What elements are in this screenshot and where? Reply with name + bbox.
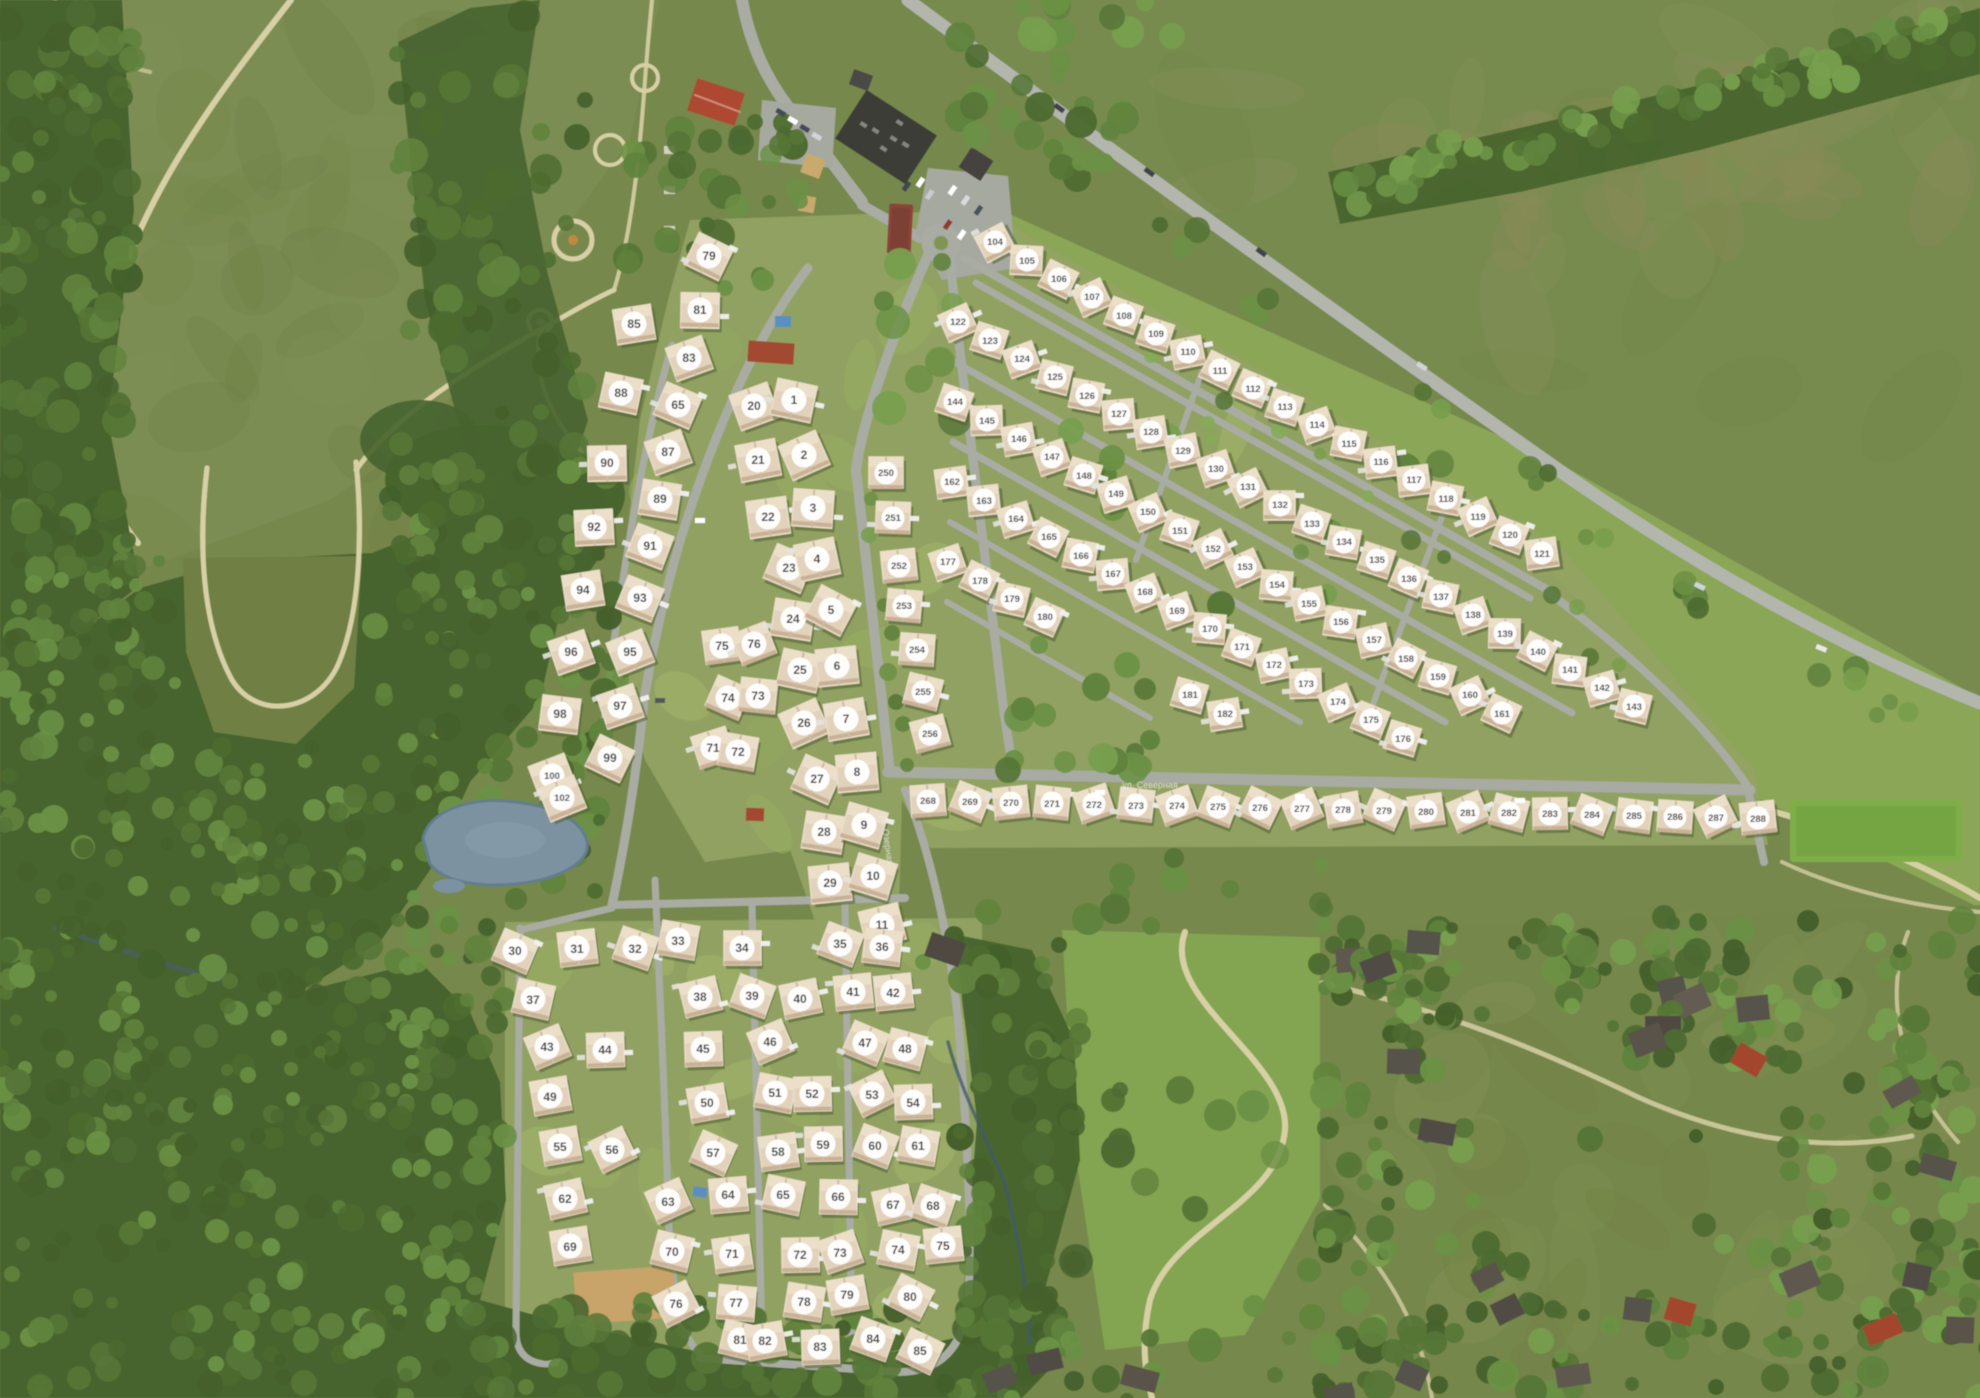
svg-text:160: 160 xyxy=(1462,690,1478,701)
svg-text:81: 81 xyxy=(693,303,707,317)
svg-text:83: 83 xyxy=(682,351,696,365)
svg-text:137: 137 xyxy=(1433,592,1449,603)
svg-text:145: 145 xyxy=(979,416,996,427)
svg-text:279: 279 xyxy=(1376,806,1392,817)
svg-text:51: 51 xyxy=(768,1086,782,1100)
svg-text:135: 135 xyxy=(1369,555,1386,566)
svg-text:274: 274 xyxy=(1169,801,1186,812)
svg-text:5: 5 xyxy=(828,603,835,617)
svg-text:65: 65 xyxy=(671,398,685,412)
svg-text:6: 6 xyxy=(834,659,841,673)
svg-text:46: 46 xyxy=(763,1035,777,1049)
svg-text:119: 119 xyxy=(1470,512,1485,523)
svg-text:32: 32 xyxy=(628,942,642,956)
svg-text:253: 253 xyxy=(896,601,912,612)
svg-text:84: 84 xyxy=(866,1332,880,1346)
svg-text:38: 38 xyxy=(693,990,707,1004)
svg-text:105: 105 xyxy=(1019,256,1036,267)
svg-text:74: 74 xyxy=(891,1243,905,1257)
svg-text:172: 172 xyxy=(1266,660,1282,671)
svg-text:68: 68 xyxy=(926,1199,940,1213)
svg-text:53: 53 xyxy=(865,1088,879,1102)
svg-text:127: 127 xyxy=(1111,409,1127,420)
svg-text:252: 252 xyxy=(891,561,907,572)
svg-text:30: 30 xyxy=(508,944,522,958)
svg-text:179: 179 xyxy=(1004,594,1020,605)
svg-text:139: 139 xyxy=(1497,629,1513,640)
svg-text:151: 151 xyxy=(1172,526,1189,537)
svg-text:155: 155 xyxy=(1301,599,1318,610)
svg-text:85: 85 xyxy=(627,317,641,331)
svg-text:180: 180 xyxy=(1037,612,1053,623)
svg-text:27: 27 xyxy=(810,772,824,786)
svg-text:104: 104 xyxy=(987,237,1004,248)
svg-text:4: 4 xyxy=(814,552,821,566)
svg-text:52: 52 xyxy=(805,1087,819,1101)
svg-text:41: 41 xyxy=(846,985,860,999)
svg-text:75: 75 xyxy=(936,1239,950,1253)
svg-text:40: 40 xyxy=(793,992,807,1006)
svg-text:71: 71 xyxy=(706,741,720,755)
svg-text:31: 31 xyxy=(570,942,584,956)
svg-text:ул. Северная: ул. Северная xyxy=(1122,780,1178,790)
svg-text:34: 34 xyxy=(735,941,749,955)
svg-text:133: 133 xyxy=(1304,519,1320,530)
svg-text:42: 42 xyxy=(886,986,900,1000)
svg-text:156: 156 xyxy=(1333,617,1349,628)
svg-text:21: 21 xyxy=(751,453,765,467)
svg-text:276: 276 xyxy=(1252,803,1268,814)
svg-text:71: 71 xyxy=(725,1247,739,1261)
svg-text:140: 140 xyxy=(1530,647,1546,658)
svg-text:158: 158 xyxy=(1398,654,1414,665)
svg-text:36: 36 xyxy=(875,940,889,954)
svg-text:70: 70 xyxy=(665,1245,679,1259)
svg-text:272: 272 xyxy=(1086,800,1102,811)
svg-text:128: 128 xyxy=(1143,427,1159,438)
svg-text:20: 20 xyxy=(747,399,761,413)
svg-text:182: 182 xyxy=(1217,709,1233,720)
svg-text:37: 37 xyxy=(526,993,540,1007)
svg-text:134: 134 xyxy=(1336,537,1353,548)
svg-text:63: 63 xyxy=(661,1195,675,1209)
svg-text:39: 39 xyxy=(745,989,759,1003)
svg-text:73: 73 xyxy=(833,1246,847,1260)
svg-text:109: 109 xyxy=(1148,329,1164,340)
svg-text:117: 117 xyxy=(1406,475,1421,486)
svg-text:148: 148 xyxy=(1076,471,1092,482)
svg-text:43: 43 xyxy=(540,1040,554,1054)
svg-text:8: 8 xyxy=(854,765,861,779)
svg-text:282: 282 xyxy=(1501,808,1517,819)
svg-text:112: 112 xyxy=(1245,384,1260,395)
svg-text:153: 153 xyxy=(1237,562,1253,573)
svg-text:79: 79 xyxy=(840,1288,854,1302)
svg-text:108: 108 xyxy=(1116,311,1132,322)
svg-text:64: 64 xyxy=(721,1188,735,1202)
svg-text:24: 24 xyxy=(786,612,800,626)
svg-text:47: 47 xyxy=(858,1036,872,1050)
svg-text:50: 50 xyxy=(700,1096,714,1110)
svg-text:91: 91 xyxy=(643,539,657,553)
svg-text:152: 152 xyxy=(1205,544,1221,555)
svg-text:96: 96 xyxy=(564,645,578,659)
svg-text:255: 255 xyxy=(915,687,932,698)
svg-text:121: 121 xyxy=(1534,549,1551,560)
svg-text:35: 35 xyxy=(833,937,847,951)
svg-text:250: 250 xyxy=(878,468,894,479)
svg-text:69: 69 xyxy=(563,1240,577,1254)
svg-text:150: 150 xyxy=(1140,507,1156,518)
svg-text:132: 132 xyxy=(1272,500,1288,511)
svg-text:76: 76 xyxy=(747,637,761,651)
svg-text:161: 161 xyxy=(1494,709,1511,720)
svg-text:273: 273 xyxy=(1128,801,1144,812)
svg-text:56: 56 xyxy=(605,1143,619,1157)
svg-text:74: 74 xyxy=(721,691,735,705)
svg-text:143: 143 xyxy=(1626,702,1642,713)
svg-text:254: 254 xyxy=(909,645,926,656)
svg-text:98: 98 xyxy=(553,707,567,721)
svg-text:115: 115 xyxy=(1341,439,1357,450)
svg-text:87: 87 xyxy=(661,445,675,459)
svg-text:92: 92 xyxy=(587,520,601,534)
svg-text:102: 102 xyxy=(554,793,570,804)
svg-text:23: 23 xyxy=(782,561,796,575)
svg-text:65: 65 xyxy=(776,1188,790,1202)
svg-text:99: 99 xyxy=(603,751,617,765)
svg-text:7: 7 xyxy=(843,712,850,726)
svg-text:177: 177 xyxy=(940,557,956,568)
svg-text:33: 33 xyxy=(671,934,685,948)
svg-text:125: 125 xyxy=(1047,372,1064,383)
svg-text:28: 28 xyxy=(817,825,831,839)
svg-text:131: 131 xyxy=(1240,482,1257,493)
svg-text:181: 181 xyxy=(1182,690,1199,701)
svg-text:120: 120 xyxy=(1502,530,1518,541)
svg-text:67: 67 xyxy=(886,1198,900,1212)
svg-text:154: 154 xyxy=(1269,580,1286,591)
svg-text:76: 76 xyxy=(669,1297,683,1311)
svg-text:159: 159 xyxy=(1430,672,1446,683)
svg-text:270: 270 xyxy=(1003,798,1019,809)
svg-text:73: 73 xyxy=(751,689,765,703)
svg-text:82: 82 xyxy=(758,1334,772,1348)
svg-text:176: 176 xyxy=(1395,734,1411,745)
svg-text:61: 61 xyxy=(911,1139,925,1153)
svg-text:285: 285 xyxy=(1626,811,1643,822)
svg-text:25: 25 xyxy=(793,663,807,677)
svg-text:83: 83 xyxy=(813,1340,827,1354)
svg-text:149: 149 xyxy=(1108,489,1124,500)
svg-text:10: 10 xyxy=(866,869,880,883)
svg-text:169: 169 xyxy=(1169,606,1185,617)
svg-text:55: 55 xyxy=(553,1140,567,1154)
svg-text:72: 72 xyxy=(731,745,745,759)
svg-text:130: 130 xyxy=(1208,464,1224,475)
svg-text:45: 45 xyxy=(696,1042,710,1056)
svg-text:256: 256 xyxy=(922,729,938,740)
svg-text:138: 138 xyxy=(1465,610,1481,621)
svg-text:141: 141 xyxy=(1562,665,1579,676)
svg-text:2: 2 xyxy=(801,448,808,462)
svg-text:269: 269 xyxy=(962,797,978,808)
svg-text:178: 178 xyxy=(972,576,988,587)
svg-text:1: 1 xyxy=(791,393,798,407)
svg-text:54: 54 xyxy=(906,1096,920,1110)
svg-text:170: 170 xyxy=(1202,624,1218,635)
svg-text:174: 174 xyxy=(1330,697,1347,708)
svg-text:251: 251 xyxy=(885,513,902,524)
svg-text:116: 116 xyxy=(1373,457,1388,468)
svg-text:165: 165 xyxy=(1041,532,1058,543)
svg-text:280: 280 xyxy=(1418,807,1434,818)
svg-text:113: 113 xyxy=(1277,402,1292,413)
svg-text:146: 146 xyxy=(1011,434,1027,445)
svg-text:126: 126 xyxy=(1079,391,1095,402)
svg-text:114: 114 xyxy=(1309,420,1325,431)
svg-text:66: 66 xyxy=(831,1190,845,1204)
svg-text:93: 93 xyxy=(633,591,647,605)
svg-text:136: 136 xyxy=(1401,574,1417,585)
svg-text:123: 123 xyxy=(982,336,998,347)
svg-text:286: 286 xyxy=(1667,812,1683,823)
svg-text:58: 58 xyxy=(771,1145,785,1159)
svg-text:122: 122 xyxy=(950,317,966,328)
svg-text:88: 88 xyxy=(614,386,628,400)
svg-text:111: 111 xyxy=(1213,366,1229,377)
svg-text:72: 72 xyxy=(793,1248,807,1262)
svg-text:26: 26 xyxy=(797,716,811,730)
svg-text:48: 48 xyxy=(898,1042,912,1056)
svg-text:79: 79 xyxy=(702,249,716,263)
svg-text:60: 60 xyxy=(868,1139,882,1153)
svg-text:106: 106 xyxy=(1051,274,1067,285)
svg-text:80: 80 xyxy=(903,1290,917,1304)
svg-text:57: 57 xyxy=(706,1146,720,1160)
svg-text:287: 287 xyxy=(1708,813,1724,824)
svg-text:162: 162 xyxy=(944,477,960,488)
svg-text:281: 281 xyxy=(1460,808,1477,819)
svg-text:97: 97 xyxy=(613,699,627,713)
svg-text:166: 166 xyxy=(1073,551,1089,562)
svg-text:173: 173 xyxy=(1298,679,1314,690)
svg-text:167: 167 xyxy=(1105,569,1121,580)
svg-text:77: 77 xyxy=(729,1296,743,1310)
svg-text:288: 288 xyxy=(1750,814,1766,825)
svg-text:90: 90 xyxy=(600,456,614,470)
svg-text:164: 164 xyxy=(1008,514,1025,525)
svg-text:62: 62 xyxy=(558,1192,572,1206)
svg-text:110: 110 xyxy=(1180,347,1195,358)
svg-text:29: 29 xyxy=(823,876,837,890)
svg-text:75: 75 xyxy=(715,639,729,653)
svg-text:175: 175 xyxy=(1363,715,1380,726)
svg-text:157: 157 xyxy=(1366,635,1382,646)
svg-text:59: 59 xyxy=(816,1138,830,1152)
svg-text:144: 144 xyxy=(947,397,964,408)
svg-text:129: 129 xyxy=(1175,446,1191,457)
svg-text:44: 44 xyxy=(598,1043,612,1057)
svg-text:95: 95 xyxy=(623,645,637,659)
svg-text:9: 9 xyxy=(861,818,868,832)
svg-text:22: 22 xyxy=(761,510,775,524)
svg-text:78: 78 xyxy=(797,1295,811,1309)
svg-text:278: 278 xyxy=(1335,805,1351,816)
svg-text:107: 107 xyxy=(1084,292,1100,303)
svg-text:3: 3 xyxy=(810,501,817,515)
svg-text:85: 85 xyxy=(913,1344,927,1358)
svg-text:89: 89 xyxy=(653,492,667,506)
svg-text:163: 163 xyxy=(976,496,992,507)
svg-text:284: 284 xyxy=(1584,810,1601,821)
svg-text:100: 100 xyxy=(544,771,560,782)
svg-text:142: 142 xyxy=(1594,683,1610,694)
svg-text:147: 147 xyxy=(1044,452,1060,463)
svg-text:124: 124 xyxy=(1014,354,1031,365)
svg-text:171: 171 xyxy=(1234,642,1251,653)
svg-text:268: 268 xyxy=(920,796,936,807)
svg-text:277: 277 xyxy=(1294,804,1310,815)
svg-text:275: 275 xyxy=(1210,802,1227,813)
svg-text:271: 271 xyxy=(1044,799,1061,810)
svg-text:168: 168 xyxy=(1137,587,1153,598)
svg-text:94: 94 xyxy=(576,583,590,597)
svg-text:118: 118 xyxy=(1438,494,1453,505)
svg-text:283: 283 xyxy=(1542,809,1558,820)
svg-text:49: 49 xyxy=(543,1090,557,1104)
